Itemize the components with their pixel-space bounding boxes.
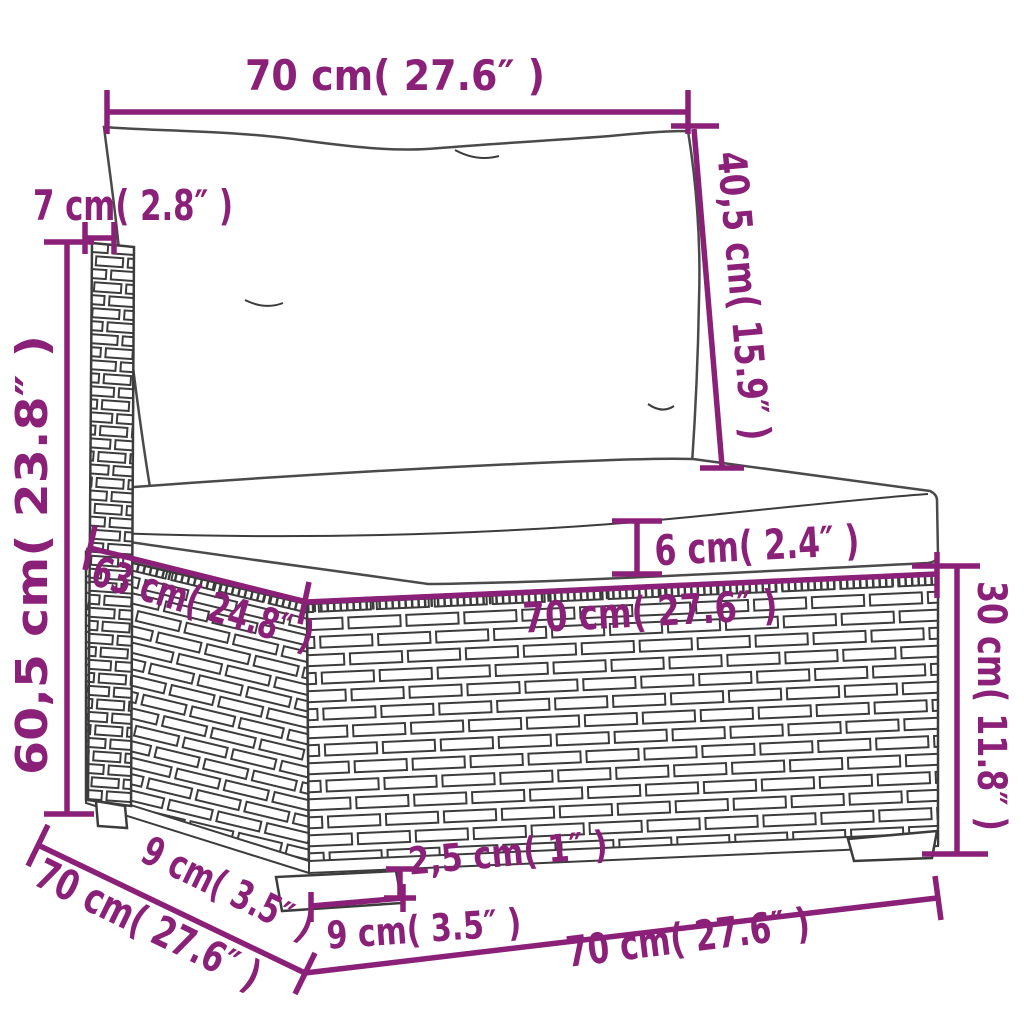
label-total-height: 60,5 cm( 23.8″ ) (7, 335, 58, 775)
armrest (88, 243, 134, 806)
label-top-width: 70 cm( 27.6″ ) (245, 51, 545, 100)
label-base-height: 30 cm( 11.8″ ) (968, 581, 1014, 831)
furniture-dimension-diagram: 70 cm( 27.6″ ) 40,5 cm( 15.9″ ) 7 cm( 2.… (0, 0, 1024, 1024)
dimension-diagram-canvas: 70 cm( 27.6″ ) 40,5 cm( 15.9″ ) 7 cm( 2.… (0, 0, 1024, 1024)
label-armrest-width: 7 cm( 2.8″ ) (33, 181, 233, 230)
label-bottom-width: 70 cm( 27.6″ ) (563, 898, 812, 976)
